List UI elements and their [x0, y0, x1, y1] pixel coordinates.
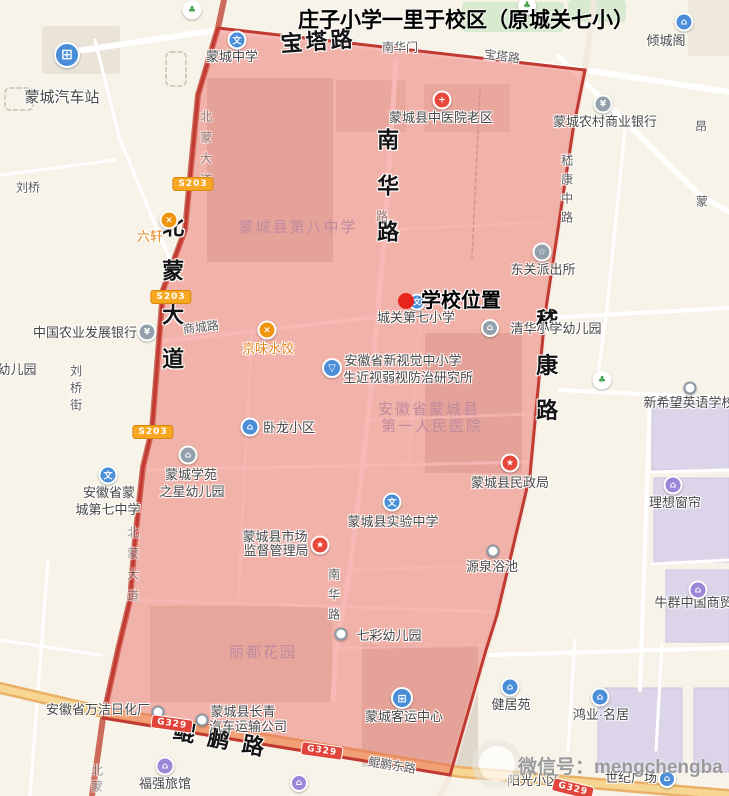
- kindergarten-icon: ⌂: [179, 446, 198, 465]
- poi-label-qinghua-kindergarten: 清华小学幼儿园: [510, 322, 601, 336]
- scenic-leaf-icon: ♣: [593, 371, 612, 390]
- road-badge-g329: G329: [300, 741, 344, 761]
- poi-label-mengcheng-middle-school: 蒙城中学: [206, 50, 258, 64]
- watermark-text: 微信号：mengchengba: [518, 752, 723, 779]
- aoi-label-lidu-garden: 丽都花园: [229, 645, 297, 662]
- poi-label-tcm-hospital: 蒙城县中医院老区: [389, 111, 493, 125]
- poi-label-liuxuan: 六轩: [137, 230, 163, 244]
- bank-icon: ¥: [138, 323, 157, 342]
- poi-ring-icon: [487, 545, 500, 558]
- poi-ring-icon: [196, 714, 209, 727]
- government-star-icon: ★: [311, 536, 330, 555]
- road-badge-s203: S203: [172, 177, 213, 191]
- hospital-cross-icon: +: [433, 91, 452, 110]
- poi-label-market-bureau-line2: 监督管理局: [243, 544, 308, 558]
- poi-label-vision-institute-line1: 安徽省新视觉中小学: [344, 354, 461, 368]
- school-location-marker: [398, 293, 414, 309]
- residence-icon: ⌂: [501, 678, 520, 697]
- poi-label-no7-middle-school-line2: 城第七中学: [75, 503, 140, 517]
- map-canvas[interactable]: 宝塔路南华路北蒙大道嵇康路鲲鹏路嵇康中路北蒙大道北蒙大道北蒙南华路路南华门宝塔路…: [0, 0, 729, 796]
- school-location-label: 学校位置: [421, 290, 501, 312]
- road-label-beimeng-partial: 北蒙: [89, 764, 102, 796]
- poi-label-no7-middle-school-line1: 安徽省蒙: [83, 486, 135, 500]
- poi-label-passenger-center: 蒙城客运中心: [365, 710, 443, 724]
- poi-label-nanhuamen: 南华门: [382, 41, 418, 54]
- poi-label-wanjie-daily-chemical: 安徽省万洁日化厂: [46, 703, 150, 717]
- road-label-jikang-middle-road: 嵇康中路: [559, 154, 572, 230]
- poi-label-partial: 蒙: [696, 195, 708, 208]
- watermark-flower-logo: [479, 746, 515, 782]
- residence-icon: ⌂: [591, 688, 610, 707]
- poi-label-qingchengge: 倾城阁: [646, 34, 685, 48]
- bus-terminal-icon: ⊞: [391, 687, 413, 709]
- road-badge-s203: S203: [150, 290, 191, 304]
- road-label-nanhua-road-small: 南华路: [326, 568, 339, 628]
- government-star-icon: ★: [501, 454, 520, 473]
- poi-label-xueyuan-kindergarten-line1: 蒙城学苑: [165, 468, 217, 482]
- poi-label-changqing-transport-line1: 蒙城县长青: [210, 705, 275, 719]
- map-labels-layer: 宝塔路南华路北蒙大道嵇康路鲲鹏路嵇康中路北蒙大道北蒙大道北蒙南华路路南华门宝塔路…: [0, 0, 729, 796]
- poi-label-jingwei-dumplings: 京味水饺: [242, 342, 294, 356]
- road-label-baota-road-small: 宝塔路: [483, 48, 520, 65]
- school-icon: 文: [383, 493, 402, 512]
- road-badge-g329: G329: [150, 714, 194, 734]
- poi-label-experimental-middle-school: 蒙城县实验中学: [347, 515, 438, 529]
- map-title: 庄子小学一里于校区（原城关七小）: [298, 4, 634, 34]
- poi-label-changqing-transport-line2: 汽车运输公司: [209, 720, 287, 734]
- poi-label-lixiang-curtains: 理想窗帘: [649, 496, 701, 510]
- road-badge-g329: G329: [551, 777, 595, 796]
- poi-label-niuqun-trade-city: 牛群中国商贸城: [654, 596, 729, 610]
- road-badge-s203: S203: [132, 425, 173, 439]
- poi-label-police-station: 东关派出所: [510, 263, 575, 277]
- shopping-icon: ⌂: [664, 476, 683, 495]
- park-tree-icon: ♣: [183, 1, 202, 20]
- police-badge-icon: ☆: [533, 243, 552, 262]
- poi-label-liuqiao: 刘桥: [16, 181, 40, 194]
- poi-label-agri-development-bank: 中国农业发展银行: [33, 326, 137, 340]
- poi-label-bus-station: 蒙城汽车站: [24, 90, 99, 107]
- bank-icon: ¥: [594, 95, 613, 114]
- poi-label-wolong-community: 卧龙小区: [263, 421, 315, 435]
- restaurant-icon: ×: [258, 321, 277, 340]
- road-label-shangcheng-road: 商城路: [182, 319, 219, 336]
- poi-label-partial: 昂: [695, 120, 707, 133]
- poi-label-qicai-kindergarten: 七彩幼儿园: [356, 629, 421, 643]
- bus-station-icon: ⊞: [54, 42, 80, 68]
- road-label-fragment: 路: [376, 210, 388, 223]
- poi-ring-icon: [684, 382, 697, 395]
- poi-label-fuqiang-hotel: 福强旅馆: [139, 777, 191, 791]
- restaurant-icon: ×: [160, 211, 179, 230]
- pagoda-icon: ⌂: [675, 13, 694, 32]
- poi-label-xueyuan-kindergarten-line2: 之星幼儿园: [159, 485, 224, 499]
- residence-icon: ⌂: [241, 418, 260, 437]
- aoi-label-first-peoples-hospital-line2: 第一人民医院: [381, 419, 483, 436]
- research-institute-icon: ▽: [322, 358, 342, 378]
- hotel-icon: ⌂: [156, 757, 175, 776]
- road-label-nanhua-road: 南华路: [374, 128, 398, 266]
- road-label-beimeng-avenue-small: 北蒙大道: [125, 526, 138, 610]
- school-icon: 文: [99, 466, 118, 485]
- poi-label-yuanquan-bathhouse: 源泉浴池: [466, 560, 518, 574]
- aoi-label-first-peoples-hospital-line1: 安徽省蒙城县: [378, 402, 480, 419]
- poi-label-vision-institute-line2: 生近视弱视防治研究所: [343, 371, 473, 385]
- middle-school-icon: 文: [228, 31, 247, 50]
- hotel-icon: ⌂: [290, 774, 308, 792]
- kindergarten-icon: ⌂: [481, 319, 499, 337]
- poi-label-rural-bank: 蒙城农村商业银行: [553, 115, 657, 129]
- poi-label-new-hope-english-school: 新希望英语学校: [643, 396, 729, 410]
- road-label-liuqiao-street: 刘桥街: [68, 365, 81, 416]
- shopping-icon: ⌂: [689, 581, 708, 600]
- poi-label-jianjuyuan: 健居苑: [491, 698, 530, 712]
- poi-ring-icon: [335, 628, 348, 641]
- road-label-kunpeng-east-road: 鲲鹏东路: [367, 756, 416, 777]
- aoi-label-no8-middle-school: 蒙城县第八中学: [238, 220, 357, 237]
- poi-label-kindergarten-partial: 幼儿园: [0, 363, 37, 377]
- poi-label-civil-affairs-bureau: 蒙城县民政局: [471, 476, 549, 490]
- poi-label-hongye-mingju: 鸿业·名居: [573, 708, 629, 722]
- poi-label-chengguan-no7-primary: 城关第七小学: [377, 311, 455, 325]
